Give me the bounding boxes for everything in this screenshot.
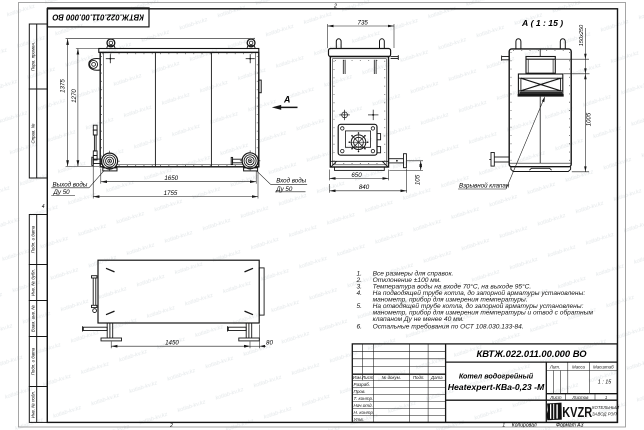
svg-text:KVZR: KVZR: [562, 405, 592, 421]
svg-text:1650: 1650: [164, 175, 178, 182]
svg-text:150х250: 150х250: [579, 24, 585, 46]
svg-text:Лист: Лист: [549, 395, 562, 400]
svg-text:Масштаб: Масштаб: [593, 364, 614, 369]
svg-text:Взрывной клапан: Взрывной клапан: [459, 182, 510, 189]
svg-text:А ( 1 : 15 ): А ( 1 : 15 ): [521, 18, 563, 28]
svg-text:КОТЕЛЬНЫЙ: КОТЕЛЬНЫЙ: [592, 405, 620, 410]
svg-text:105: 105: [414, 174, 421, 185]
svg-text:А: А: [283, 94, 290, 104]
svg-text:Лит.: Лит.: [549, 364, 560, 369]
svg-text:2: 2: [169, 423, 173, 429]
svg-text:Н. контр.: Н. контр.: [354, 410, 375, 415]
svg-text:Перв. примен.: Перв. примен.: [31, 42, 36, 71]
svg-text:Копировал: Копировал: [512, 423, 537, 429]
svg-text:Ду 50: Ду 50: [53, 189, 71, 196]
svg-text:Инв. № дубл.: Инв. № дубл.: [31, 269, 36, 296]
svg-text:Остальные требования по ОСТ 10: Остальные требования по ОСТ 108.030.133-…: [373, 322, 524, 330]
svg-text:Листов: Листов: [571, 395, 589, 400]
svg-text:Инв. № подл.: Инв. № подл.: [31, 391, 36, 418]
svg-text:№ докум.: № докум.: [382, 375, 401, 380]
svg-text:Изм.: Изм.: [353, 375, 362, 380]
svg-text:1270: 1270: [71, 89, 78, 103]
svg-text:5.: 5.: [357, 303, 363, 310]
svg-text:Утв.: Утв.: [354, 417, 364, 422]
svg-text:1375: 1375: [60, 79, 67, 93]
svg-text:80: 80: [266, 340, 273, 347]
svg-text:Дата: Дата: [430, 375, 443, 380]
svg-text:Пров.: Пров.: [354, 389, 366, 394]
svg-text:Разраб.: Разраб.: [354, 382, 371, 387]
svg-text:Подп. и дата: Подп. и дата: [31, 347, 36, 375]
svg-text:ЗАВОД РЭП: ЗАВОД РЭП: [592, 411, 618, 416]
svg-text:Heatexpert-КВа-0,23 -М: Heatexpert-КВа-0,23 -М: [448, 382, 545, 392]
svg-text:2: 2: [333, 4, 337, 10]
svg-text:735: 735: [358, 19, 369, 26]
svg-text:1450: 1450: [165, 339, 179, 346]
svg-text:1755: 1755: [164, 190, 178, 197]
svg-text:Справ. №: Справ. №: [31, 123, 36, 143]
svg-text:КВТЖ.022.011.00.000 ВО: КВТЖ.022.011.00.000 ВО: [476, 348, 587, 359]
svg-text:840: 840: [359, 184, 370, 191]
svg-text:клапаном Ду не менее 40 мм.: клапаном Ду не менее 40 мм.: [373, 316, 465, 323]
svg-text:650: 650: [351, 172, 362, 179]
svg-text:Формат А3: Формат А3: [556, 423, 584, 429]
svg-text:Лист: Лист: [361, 375, 374, 380]
svg-text:1: 1: [502, 423, 505, 429]
svg-text:КВТЖ.022.011.00.000 ВО: КВТЖ.022.011.00.000 ВО: [52, 13, 144, 22]
svg-text:4: 4: [42, 204, 45, 210]
svg-text:1005: 1005: [586, 112, 592, 126]
svg-text:Котел водогрейный: Котел водогрейный: [459, 371, 534, 380]
svg-text:4.: 4.: [357, 290, 363, 297]
svg-text:Т. контр.: Т. контр.: [354, 396, 374, 401]
svg-text:Масса: Масса: [572, 364, 586, 369]
svg-text:Вход воды: Вход воды: [276, 178, 306, 185]
svg-text:Нач.отд.: Нач.отд.: [354, 403, 373, 408]
svg-text:Подп.: Подп.: [413, 375, 425, 380]
svg-text:Подп. и дата: Подп. и дата: [31, 225, 36, 253]
svg-text:1 : 15: 1 : 15: [598, 380, 612, 386]
svg-text:Выход воды: Выход воды: [53, 181, 88, 188]
svg-text:Взам. инв. №: Взам. инв. №: [31, 305, 36, 332]
svg-text:6.: 6.: [357, 323, 363, 330]
